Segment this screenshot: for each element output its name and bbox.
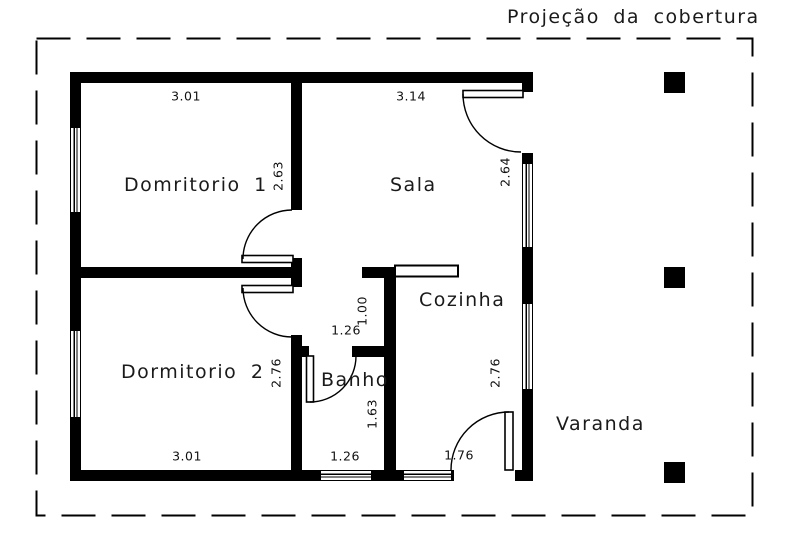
dim-hall-width: 1.26 [331, 323, 361, 338]
wall-top [70, 72, 533, 83]
room-label-cozinha: Cozinha [419, 289, 505, 311]
dim-sala-width: 3.14 [396, 89, 426, 104]
room-label-sala: Sala [390, 174, 437, 196]
door-dorm2 [242, 286, 293, 338]
dim-dormitorio2-height: 2.76 [269, 358, 284, 388]
floor-plan-canvas [0, 0, 798, 544]
column-bottom [664, 462, 685, 483]
kitchen-door-opening [454, 469, 515, 482]
window-cozinha-right [523, 304, 533, 390]
dim-hall-height: 1.00 [355, 296, 370, 326]
column-top [664, 72, 685, 93]
dim-banho-height: 1.63 [365, 399, 380, 429]
floor-plan: Projeção da cobertura Domritorio 1 Sala … [0, 0, 798, 544]
kitchen-counter [395, 266, 458, 277]
dim-cozinha-door-width: 1.76 [444, 448, 474, 463]
interior-walls [81, 83, 396, 481]
room-label-varanda: Varanda [556, 413, 645, 435]
column-middle [664, 267, 685, 288]
dim-sala-height: 2.64 [498, 157, 513, 187]
roof-projection-label: Projeção da cobertura [507, 6, 760, 28]
window-sala-right [523, 164, 533, 248]
window-dorm1-left [71, 128, 81, 213]
wall-dorm1-sala [291, 83, 302, 210]
dim-dormitorio1-width: 3.01 [171, 89, 201, 104]
door-entrance-sala [463, 91, 523, 153]
entrance-opening [521, 92, 534, 153]
veranda-columns [664, 72, 685, 483]
wall-dorm1-dorm2 [81, 267, 302, 278]
window-banho-bottom [321, 471, 372, 481]
dim-banho-width: 1.26 [330, 449, 360, 464]
room-label-banho: Banho [321, 369, 389, 391]
window-dorm2-left [71, 331, 81, 418]
room-label-dormitorio1: Domritorio 1 [124, 174, 268, 196]
dim-dormitorio2-width: 3.01 [172, 449, 202, 464]
window-cozinha-bottom [404, 471, 452, 481]
dim-dormitorio1-height: 2.63 [271, 161, 286, 191]
dim-cozinha-height: 2.76 [488, 358, 503, 388]
room-label-dormitorio2: Dormitorio 2 [121, 361, 264, 383]
door-dorm1 [242, 210, 293, 263]
